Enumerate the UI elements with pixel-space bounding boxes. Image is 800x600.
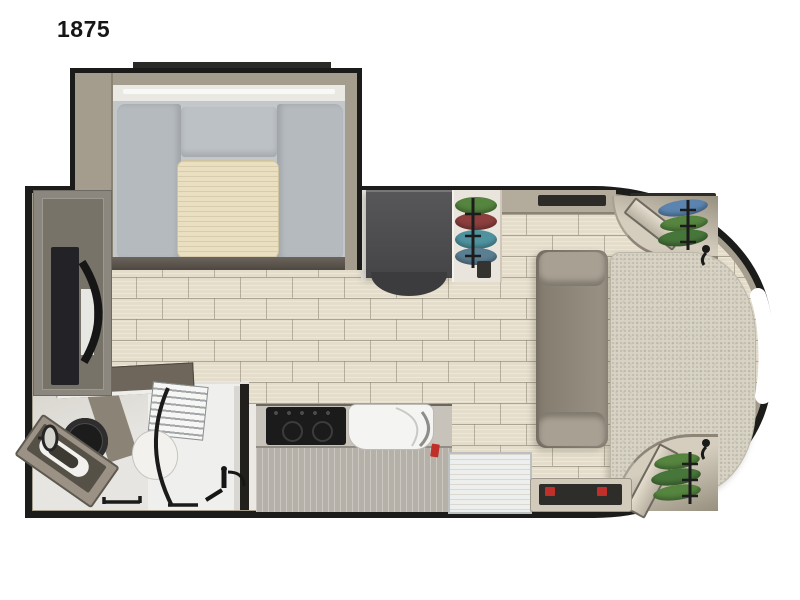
floorplan-canvas: 1875 xyxy=(0,0,800,600)
cooktop-burner xyxy=(282,421,303,442)
step-latch-red xyxy=(597,487,607,496)
dinette-cushion-left xyxy=(117,104,181,260)
dinette-slide-out xyxy=(70,68,362,270)
dinette-cushion-right xyxy=(277,104,343,260)
clothes-maroon xyxy=(455,213,497,230)
clothes-teal xyxy=(455,230,497,249)
kitchen-sink xyxy=(348,404,434,450)
cooktop-knobs xyxy=(274,411,338,415)
model-number: 1875 xyxy=(57,16,110,43)
bathroom-wall xyxy=(240,384,249,510)
refrigerator xyxy=(366,190,452,278)
slide-foot-trim xyxy=(110,257,345,270)
tv-cabinet xyxy=(33,190,112,396)
sofa-armrest-top xyxy=(539,252,605,286)
sofa-armrest-bottom xyxy=(539,412,605,446)
slide-light-strip xyxy=(123,89,335,94)
step-latch-red xyxy=(545,487,555,496)
cooktop-burner xyxy=(312,421,333,442)
overhead-cabinet-window xyxy=(538,195,606,206)
kitchen-end-panel xyxy=(249,404,256,510)
dinette-table xyxy=(177,160,279,259)
wardrobe-storage-item xyxy=(477,261,491,278)
tv-cabinet-shelf xyxy=(81,289,94,355)
clothes-green xyxy=(455,197,497,214)
dinette-cushion-head xyxy=(181,107,277,157)
entry-landing xyxy=(448,452,532,514)
tv-screen xyxy=(51,247,79,385)
